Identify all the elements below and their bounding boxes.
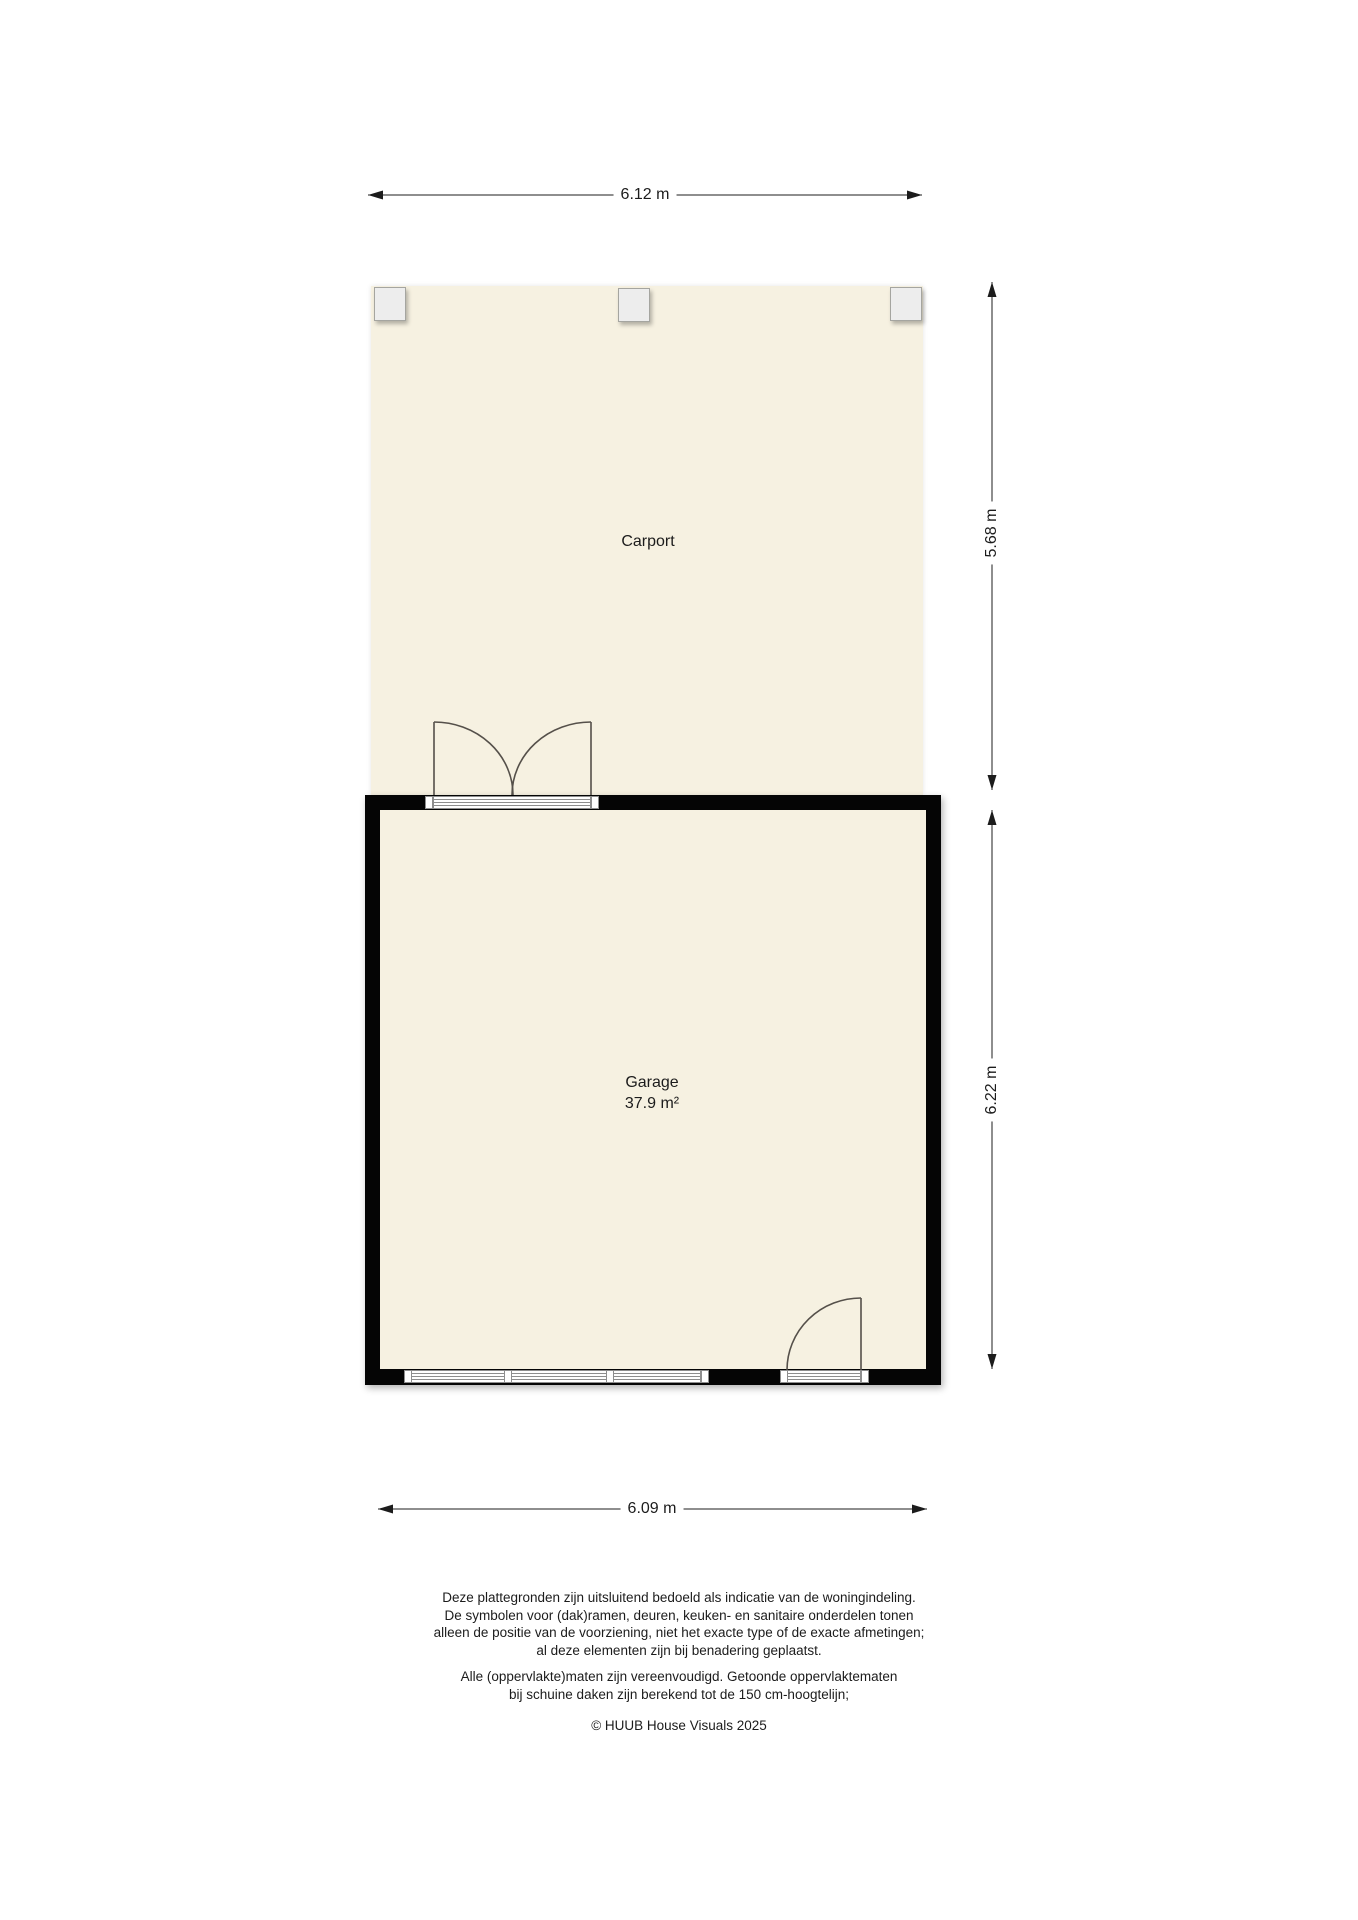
single-door-jamb-right (861, 1370, 869, 1383)
single-door-threshold (787, 1370, 861, 1383)
double-door-jamb-left (425, 796, 433, 809)
dimension-label-garage-depth: 6.22 m (983, 1059, 1001, 1122)
garage-area-label: 37.9 m² (625, 1093, 679, 1114)
carport-post-right (890, 287, 922, 321)
disclaimer-line: bij schuine daken zijn berekend tot de 1… (0, 1686, 1358, 1704)
copyright-label: © HUUB House Visuals 2025 (0, 1717, 1358, 1735)
disclaimer-line: alleen de positie van de voorziening, ni… (0, 1624, 1358, 1642)
window-mullion-2 (606, 1370, 614, 1383)
window-glazing (411, 1370, 701, 1383)
disclaimer-line: Deze plattegronden zijn uitsluitend bedo… (0, 1589, 1358, 1607)
floorplan-canvas: Carport Garage 37.9 m² 6.12 m 5.68 m 6.2… (0, 0, 1358, 1920)
dimension-label-carport-depth: 5.68 m (983, 502, 1001, 565)
carport-label: Carport (621, 533, 674, 551)
window-jamb-right (701, 1370, 709, 1383)
disclaimer-line: al deze elementen zijn bij benadering ge… (0, 1642, 1358, 1660)
disclaimer-line: Alle (oppervlakte)maten zijn vereenvoudi… (0, 1668, 1358, 1686)
double-door-threshold (433, 796, 591, 809)
carport-post-left (374, 287, 406, 321)
window-mullion-1 (504, 1370, 512, 1383)
double-door-jamb-right (591, 796, 599, 809)
dimension-label-carport-width: 6.12 m (614, 186, 677, 204)
dimension-label-garage-width: 6.09 m (621, 1500, 684, 1518)
garage-label: Garage (625, 1072, 679, 1093)
disclaimer-line: De symbolen voor (dak)ramen, deuren, keu… (0, 1607, 1358, 1625)
carport-post-middle (618, 288, 650, 322)
garage-label-block: Garage 37.9 m² (625, 1072, 679, 1114)
